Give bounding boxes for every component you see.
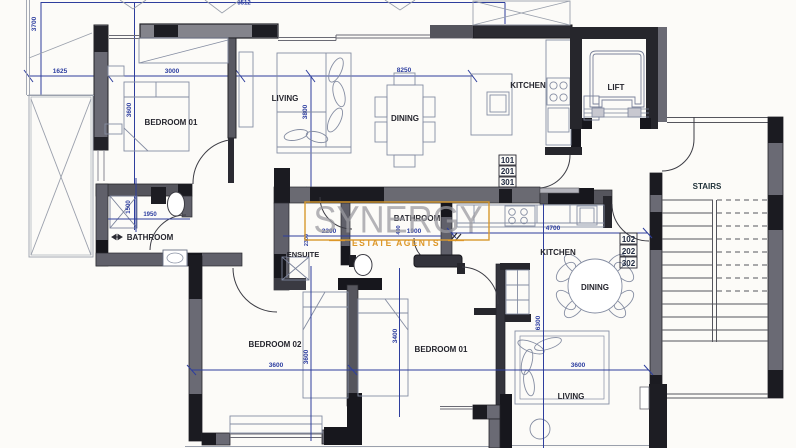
svg-text:202: 202	[622, 247, 636, 256]
svg-text:3400: 3400	[392, 328, 399, 343]
svg-text:3600: 3600	[571, 362, 586, 369]
svg-text:301: 301	[501, 178, 515, 187]
svg-text:201: 201	[501, 167, 515, 176]
svg-text:ESTATE AGENTS: ESTATE AGENTS	[352, 238, 440, 248]
svg-text:3600: 3600	[126, 102, 133, 117]
svg-text:STAIRS: STAIRS	[693, 182, 722, 191]
svg-text:3600: 3600	[303, 349, 310, 364]
svg-text:3512: 3512	[237, 1, 251, 7]
svg-text:BEDROOM 02: BEDROOM 02	[249, 340, 302, 349]
svg-text:ENSUITE: ENSUITE	[287, 250, 320, 259]
svg-text:KITCHEN: KITCHEN	[540, 248, 576, 257]
svg-text:101: 101	[501, 156, 515, 165]
svg-text:LIVING: LIVING	[272, 94, 299, 103]
svg-text:DINING: DINING	[391, 114, 419, 123]
svg-text:3600: 3600	[269, 362, 284, 369]
svg-text:4700: 4700	[546, 225, 561, 232]
svg-text:BATHROOM: BATHROOM	[127, 233, 174, 242]
svg-text:302: 302	[622, 259, 636, 268]
svg-text:1625: 1625	[53, 68, 68, 75]
svg-text:BEDROOM 01: BEDROOM 01	[145, 118, 198, 127]
svg-text:102: 102	[622, 235, 636, 244]
svg-text:KITCHEN: KITCHEN	[510, 81, 546, 90]
svg-text:1500: 1500	[126, 200, 132, 214]
svg-text:LIVING: LIVING	[558, 392, 585, 401]
svg-text:1950: 1950	[143, 212, 157, 218]
svg-text:3000: 3000	[165, 68, 180, 75]
svg-text:LIFT: LIFT	[608, 83, 625, 92]
svg-text:3700: 3700	[31, 16, 38, 31]
svg-text:DINING: DINING	[581, 283, 609, 292]
svg-text:6300: 6300	[535, 315, 542, 330]
svg-text:SYNERGY: SYNERGY	[314, 200, 483, 242]
svg-text:BEDROOM 01: BEDROOM 01	[415, 345, 468, 354]
